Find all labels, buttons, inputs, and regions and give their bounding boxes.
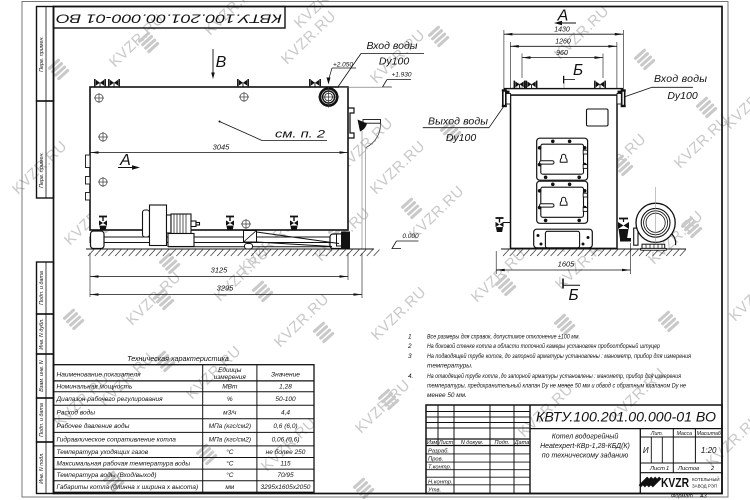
svg-text:МВт: МВт xyxy=(222,384,238,391)
svg-text:°С: °С xyxy=(226,460,234,468)
svg-text:3: 3 xyxy=(408,353,412,360)
svg-text:Пров.: Пров. xyxy=(428,457,443,463)
svg-text:960: 960 xyxy=(556,50,568,57)
svg-text:KVZR: KVZR xyxy=(661,475,689,490)
svg-text:Вход воды: Вход воды xyxy=(654,73,707,85)
svg-text:Лит.: Лит. xyxy=(650,431,663,437)
svg-text:На боковой стенке котла в обла: На боковой стенке котла в области топочн… xyxy=(427,342,660,350)
svg-text:KVZR.RU: KVZR.RU xyxy=(352,376,414,436)
svg-text:На отводящей трубе котла ,до з: На отводящей трубе котла ,до запорной ар… xyxy=(427,372,681,380)
svg-text:Разраб.: Разраб. xyxy=(428,449,449,455)
svg-text:Лист: Лист xyxy=(438,440,454,446)
svg-text:А3: А3 xyxy=(699,494,708,500)
svg-text:Б: Б xyxy=(573,62,583,79)
svg-text:1: 1 xyxy=(408,334,412,341)
svg-text:Формат: Формат xyxy=(671,494,693,500)
svg-text:Перв. примен.: Перв. примен. xyxy=(39,36,45,72)
svg-text:Температура уходящих газов: Температура уходящих газов xyxy=(57,448,149,456)
svg-text:Т.контр.: Т.контр. xyxy=(428,464,451,470)
svg-text:Н.контр.: Н.контр. xyxy=(428,479,453,485)
svg-text:1605: 1605 xyxy=(558,260,576,269)
svg-text:1,28: 1,28 xyxy=(279,384,292,391)
svg-text:Листов: Листов xyxy=(677,466,699,472)
svg-text:На подводящей трубе котла, д: На подводящей трубе котла, до запорной а… xyxy=(427,352,691,360)
svg-text:115: 115 xyxy=(280,461,291,468)
svg-text:МПа (кгс/см2): МПа (кгс/см2) xyxy=(209,436,251,443)
svg-text:Перв. примен.: Перв. примен. xyxy=(39,152,45,188)
svg-text:0.000: 0.000 xyxy=(402,233,419,240)
svg-text:KVZR.RU: KVZR.RU xyxy=(468,245,530,305)
svg-text:Лист: Лист xyxy=(649,466,665,472)
svg-text:Рабочее давление воды: Рабочее давление воды xyxy=(57,422,130,430)
svg-text:А: А xyxy=(119,152,131,169)
svg-text:70/95: 70/95 xyxy=(277,472,294,479)
svg-text:менее 50 мм.: менее 50 мм. xyxy=(427,392,467,399)
svg-text:Дата: Дата xyxy=(514,440,530,446)
svg-text:Все размеры для справок, допус: Все размеры для справок, допустимое откл… xyxy=(427,333,580,341)
svg-text:KVZR.RU: KVZR.RU xyxy=(726,264,750,324)
svg-text:Габариты котла (длинна х ширин: Габариты котла (длинна х ширина х высота… xyxy=(57,483,199,491)
svg-text:Подп. и дата: Подп. и дата xyxy=(39,403,45,437)
svg-text:Б: Б xyxy=(568,287,578,304)
svg-text:Dy100: Dy100 xyxy=(379,56,410,68)
svg-text:Гидравлическое сопративление к: Гидравлическое сопративление котла xyxy=(57,435,177,443)
svg-text:3295х1605х2050: 3295х1605х2050 xyxy=(261,484,311,491)
svg-text:температуры, предохранительный: температуры, предохранительный клапан Dу… xyxy=(427,382,686,390)
svg-text:1: 1 xyxy=(666,466,669,472)
svg-text:0,06 (0,6): 0,06 (0,6) xyxy=(272,436,300,443)
svg-text:м3/ч: м3/ч xyxy=(223,409,237,416)
svg-text:Масса: Масса xyxy=(677,431,692,437)
svg-text:Инв. N дубл.: Инв. N дубл. xyxy=(39,318,45,349)
svg-text:50-100: 50-100 xyxy=(275,396,296,403)
svg-text:KVZR.RU: KVZR.RU xyxy=(368,283,430,343)
svg-text:см. п. 2: см. п. 2 xyxy=(275,129,325,141)
svg-text:°С: °С xyxy=(226,448,234,456)
svg-text:Dy100: Dy100 xyxy=(446,132,477,144)
svg-text:Изм: Изм xyxy=(427,440,438,446)
svg-text:Техническая характеристика: Техническая характеристика xyxy=(127,354,229,363)
svg-text:измерения: измерения xyxy=(214,374,247,381)
svg-text:мм: мм xyxy=(225,484,234,491)
svg-text:Значение: Значение xyxy=(271,372,300,379)
svg-text:+2.050: +2.050 xyxy=(333,62,353,69)
svg-text:Диапазон рабочего регулировани: Диапазон рабочего регулирования xyxy=(56,395,164,403)
svg-text:И: И xyxy=(643,446,649,455)
svg-text:Максимальная рабочая температу: Максимальная рабочая температура воды xyxy=(57,460,191,468)
svg-text:по техническому заданию: по техническому заданию xyxy=(542,452,629,460)
svg-text:Температура воды (Вход/выход): Температура воды (Вход/выход) xyxy=(57,471,157,479)
svg-text:температуры.: температуры. xyxy=(427,363,473,370)
svg-text:+1.930: +1.930 xyxy=(391,72,411,79)
svg-text:Масштаб: Масштаб xyxy=(697,431,722,437)
svg-text:КОТЕЛЬНЫЙ: КОТЕЛЬНЫЙ xyxy=(692,477,720,482)
svg-text:Heatexpert-КВр-1,28-КБД(К): Heatexpert-КВр-1,28-КБД(К) xyxy=(540,443,630,450)
svg-text:3295: 3295 xyxy=(217,284,235,293)
svg-text:Вход воды: Вход воды xyxy=(367,40,418,52)
svg-text:Утв.: Утв. xyxy=(427,488,441,494)
svg-text:Расход воды: Расход воды xyxy=(57,408,96,416)
svg-text:Dy100: Dy100 xyxy=(667,90,698,102)
svg-text:Едиицы: Едиицы xyxy=(218,366,242,374)
svg-text:Подп.: Подп. xyxy=(495,440,510,446)
svg-text:0,6 (6,0): 0,6 (6,0) xyxy=(273,423,297,430)
svg-text:3045: 3045 xyxy=(213,143,231,152)
svg-text:4.: 4. xyxy=(408,373,413,380)
svg-text:N докум.: N докум. xyxy=(461,440,484,446)
svg-text:Взам. инв. N: Взам. инв. N xyxy=(39,360,45,392)
svg-text:КВТУ.100.201.00.000-01 ВО: КВТУ.100.201.00.000-01 ВО xyxy=(536,410,716,425)
svg-text:ЗАВОД РЭП: ЗАВОД РЭП xyxy=(692,484,717,489)
svg-text:Наименование показателя: Наименование показателя xyxy=(57,372,142,379)
svg-text:3125: 3125 xyxy=(211,266,229,275)
svg-text:KVZR.RU: KVZR.RU xyxy=(367,137,429,197)
svg-text:Подп. и дата: Подп. и дата xyxy=(39,271,45,305)
svg-text:1260: 1260 xyxy=(555,39,571,46)
svg-text:МПа (кгс/см2): МПа (кгс/см2) xyxy=(209,423,251,430)
svg-text:°С: °С xyxy=(226,471,234,479)
svg-text:Котел водогрейный: Котел водогрейный xyxy=(552,433,619,441)
svg-text:Выход воды: Выход воды xyxy=(428,116,488,128)
svg-text:%: % xyxy=(227,396,233,403)
svg-text:В: В xyxy=(216,54,227,71)
svg-text:КВТУ.100.201.00.000-01 ВО: КВТУ.100.201.00.000-01 ВО xyxy=(56,11,282,23)
svg-text:1:20: 1:20 xyxy=(701,446,717,455)
svg-text:Инв. N подл.: Инв. N подл. xyxy=(39,452,45,484)
svg-text:KVZR.RU: KVZR.RU xyxy=(671,111,733,171)
svg-text:1430: 1430 xyxy=(554,27,570,34)
svg-text:4,4: 4,4 xyxy=(281,409,290,416)
svg-text:2: 2 xyxy=(407,343,412,350)
svg-text:Номинальная мощность: Номинальная мощность xyxy=(57,384,134,391)
svg-text:не более 250: не более 250 xyxy=(266,448,306,456)
